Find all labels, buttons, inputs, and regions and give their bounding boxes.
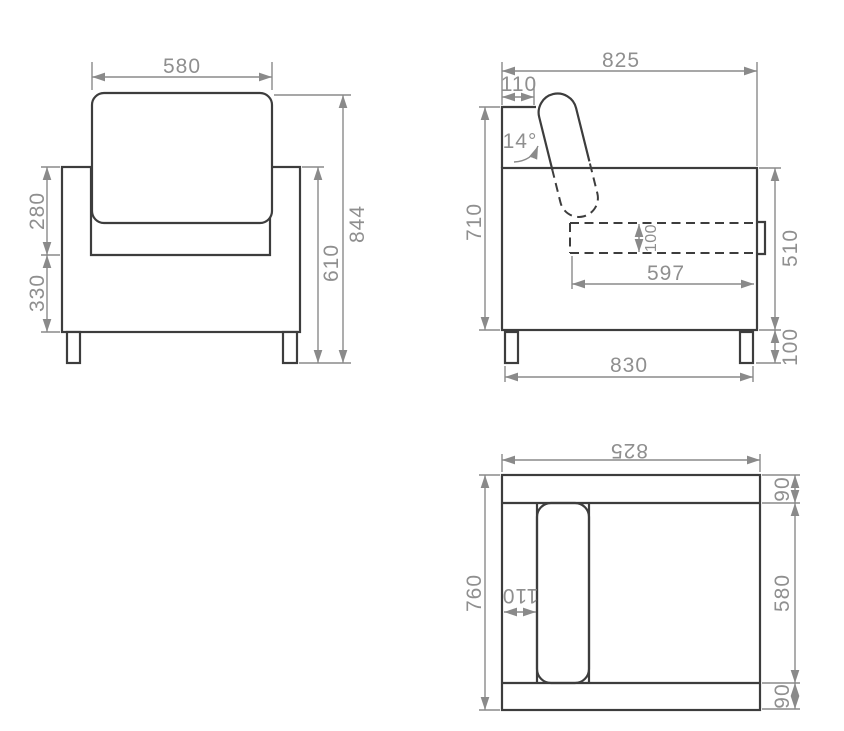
dim-top-back-band-label: 90: [771, 476, 794, 501]
armchair-drawing: 580 844 610 280 330: [0, 0, 844, 731]
side-seat-latch: [757, 222, 765, 254]
dim-top-back-band: 90: [762, 475, 800, 503]
dim-side-leg-height-label: 100: [779, 328, 802, 366]
front-leg-left: [67, 332, 80, 363]
dim-top-front-band-label: 90: [771, 683, 794, 708]
dim-front-arm-height: 330: [26, 255, 60, 332]
dim-front-width: 580: [92, 55, 272, 90]
dim-side-back-depth-label: 110: [501, 73, 537, 96]
front-view: 580 844 610 280 330: [26, 55, 369, 363]
dim-side-back-depth: 110: [501, 73, 537, 105]
dim-side-base-depth: 830: [505, 354, 753, 382]
technical-drawing-canvas: 580 844 610 280 330: [0, 0, 844, 731]
dim-top-seat-depth: 580: [762, 503, 800, 683]
dim-top-armrest-width-label: 110: [502, 584, 538, 607]
dim-front-total-height-label: 844: [346, 205, 369, 243]
dim-front-back-height: 280: [26, 167, 60, 255]
dim-top-width-label: 825: [610, 439, 648, 462]
side-view: 825 110 14° 710 100 597: [463, 49, 802, 382]
top-body-outline: [502, 475, 760, 710]
dim-top-width: 825: [502, 439, 760, 472]
dim-top-seat-depth-label: 580: [771, 574, 794, 612]
dim-top-front-band: 90: [762, 683, 800, 709]
dim-front-body-height: 610: [302, 167, 343, 363]
side-backrest-pillar: [535, 90, 602, 221]
dim-front-arm-height-label: 330: [26, 274, 49, 312]
dim-side-seat-depth: 597: [572, 256, 754, 289]
front-backrest-cushion: [92, 93, 272, 223]
dim-side-cushion-thickness-label: 100: [643, 224, 660, 252]
side-leg-front: [740, 332, 753, 363]
side-leg-back: [505, 332, 518, 363]
dim-side-height-label: 710: [463, 203, 486, 241]
dim-side-height: 710: [463, 107, 500, 330]
dim-front-back-height-label: 280: [26, 192, 49, 230]
front-leg-right: [283, 332, 297, 363]
top-armrest-cushion: [537, 503, 589, 683]
dim-side-cushion-thickness: 100: [639, 224, 660, 252]
dim-side-seat-depth-label: 597: [647, 262, 685, 285]
dim-top-depth: 760: [463, 475, 500, 710]
dim-front-body-height-label: 610: [320, 244, 343, 282]
dim-side-back-angle-label: 14°: [503, 130, 538, 153]
dim-side-leg-height: 100: [756, 328, 802, 366]
side-backrest-hidden: [535, 90, 602, 221]
dim-side-back-angle: 14°: [503, 130, 538, 162]
dim-side-base-depth-label: 830: [610, 354, 648, 377]
dim-front-width-label: 580: [163, 55, 201, 78]
dim-top-armrest-width: 110: [502, 584, 538, 612]
dim-top-depth-label: 760: [463, 574, 486, 612]
top-view: 825 760 110 90 580 90: [463, 439, 800, 710]
dim-side-frame-height-label: 510: [779, 229, 802, 267]
side-body-outline: [502, 168, 757, 330]
dim-side-total-depth-label: 825: [602, 49, 640, 72]
side-seat-hidden: [570, 223, 756, 253]
dim-front-total-height: 844: [274, 95, 369, 363]
